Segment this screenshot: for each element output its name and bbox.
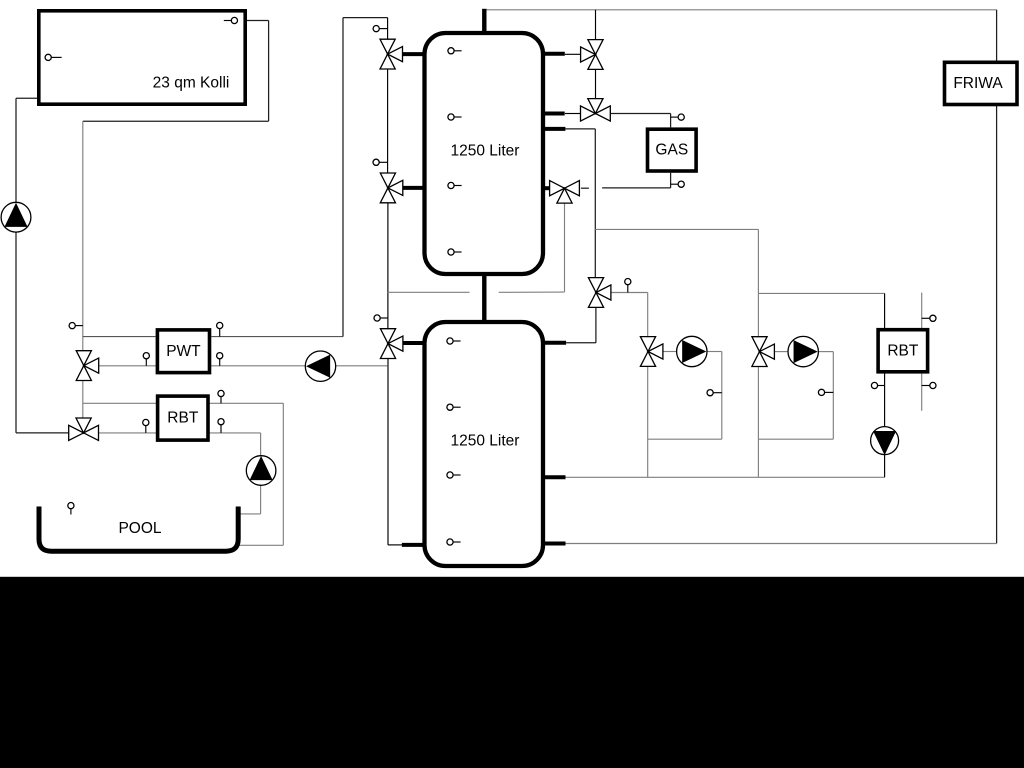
svg-text:1250 Liter: 1250 Liter xyxy=(451,433,520,450)
svg-text:RBT: RBT xyxy=(887,342,919,359)
svg-text:RBT: RBT xyxy=(167,410,199,427)
svg-text:1250 Liter: 1250 Liter xyxy=(451,143,520,160)
svg-text:FRIWA: FRIWA xyxy=(953,75,1003,92)
svg-text:GAS: GAS xyxy=(655,142,688,159)
svg-text:23 qm Kolli: 23 qm Kolli xyxy=(153,75,230,92)
svg-text:PWT: PWT xyxy=(166,343,201,360)
svg-text:POOL: POOL xyxy=(118,520,161,537)
